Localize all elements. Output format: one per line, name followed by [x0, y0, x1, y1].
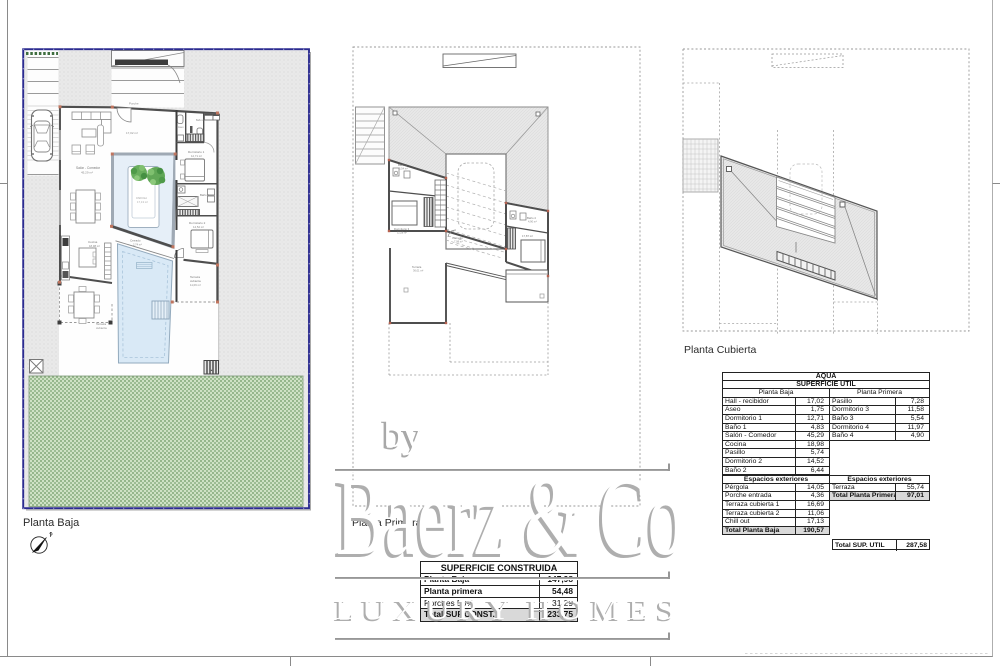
svg-text:Baerz & Co: Baerz & Co — [336, 455, 684, 579]
svg-text:by: by — [384, 413, 424, 456]
svg-text:L U X U R Y H O M E S: L U X U R Y H O M E S — [335, 595, 675, 626]
